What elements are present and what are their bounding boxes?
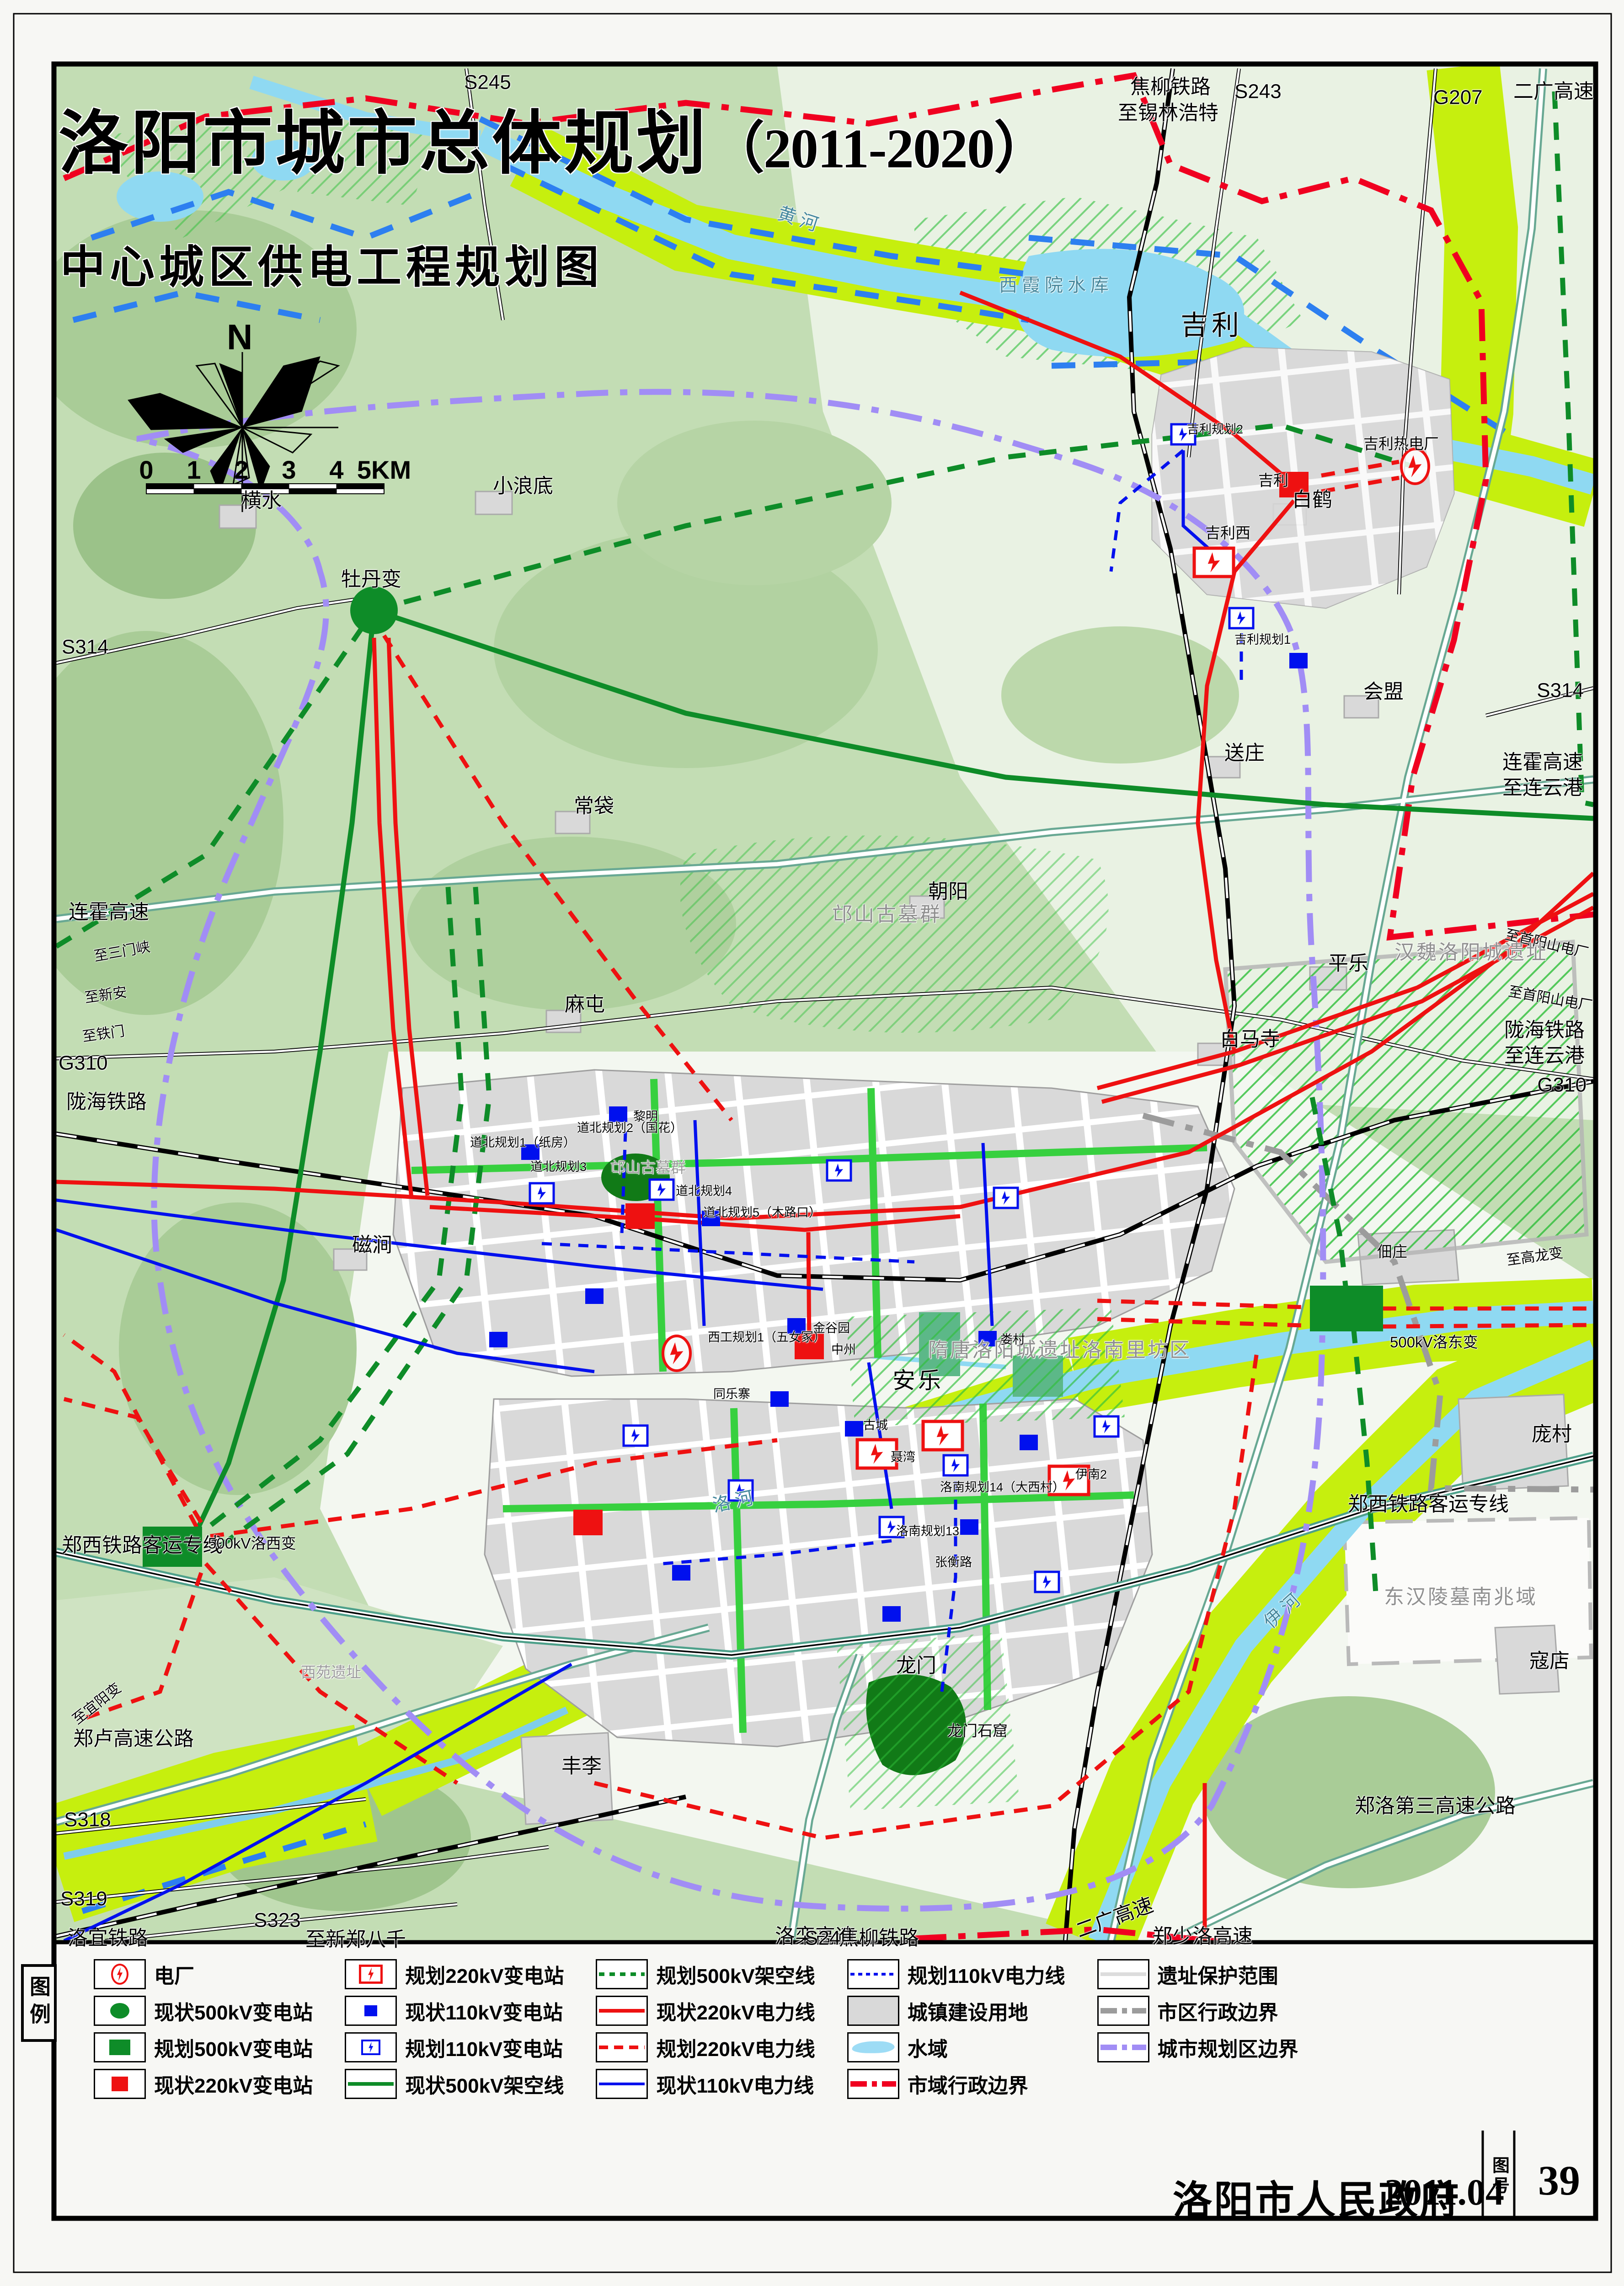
legend-item: 规划220kV变电站 <box>345 1956 564 1992</box>
legend-title: 图例 <box>21 1964 57 2042</box>
substation-marker <box>787 1318 806 1334</box>
substation-marker <box>585 1288 604 1304</box>
substation-marker <box>672 1565 690 1581</box>
legend-item-label: 现状110kV变电站 <box>405 1996 563 2025</box>
substation-marker <box>702 1211 720 1226</box>
substation-marker <box>978 1331 997 1346</box>
substation-marker <box>489 1332 507 1347</box>
legend-symbol-icon <box>847 1996 899 2026</box>
page-subtitle: 中心城区供电工程规划图 <box>60 231 604 296</box>
legend-item-label: 规划110kV电力线 <box>908 1960 1065 1989</box>
legend-symbol-icon <box>345 2032 397 2062</box>
legend-symbol-icon <box>1097 1959 1149 1989</box>
legend-item: 规划500kV架空线 <box>596 1956 815 1992</box>
scale-tick: 0 <box>139 455 153 485</box>
scale-tick: 5KM <box>357 455 411 485</box>
legend-item-label: 遗址保护范围 <box>1158 1960 1278 1989</box>
legend-item: 遗址保护范围 <box>1097 1956 1298 1992</box>
substation-marker <box>882 1606 901 1622</box>
legend-item-label: 规划110kV变电站 <box>405 2033 563 2062</box>
page-title: 洛阳市城市总体规划（2011-2020） <box>59 87 1049 187</box>
legend-item: 市域行政边界 <box>847 2066 1065 2102</box>
legend-symbol-icon <box>596 1996 648 2026</box>
legend-item-label: 电厂 <box>154 1960 194 1989</box>
legend-item-label: 规划220kV变电站 <box>405 1960 564 1989</box>
legend-item-label: 水域 <box>908 2033 948 2062</box>
sheet-number-label: 图号 <box>1484 2134 1514 2218</box>
map-sheet: 洛阳市城市总体规划（2011-2020） 中心城区供电工程规划图 N 01234… <box>0 0 1624 2286</box>
scale-tick: 2 <box>234 455 248 485</box>
substation-marker <box>960 1519 978 1535</box>
substation-marker <box>573 1510 603 1535</box>
legend-item-label: 现状110kV电力线 <box>656 2069 814 2099</box>
legend-symbol-icon <box>847 1959 899 1989</box>
legend-item-label: 规划220kV电力线 <box>656 2033 815 2062</box>
legend-item-label: 现状220kV电力线 <box>656 1996 815 2025</box>
legend-symbol-icon <box>847 2032 899 2062</box>
legend-symbol-icon <box>94 2069 146 2099</box>
substation-marker <box>625 1203 655 1229</box>
legend-symbol-icon <box>94 1996 146 2026</box>
scale-tick: 4 <box>329 455 343 485</box>
substation-marker <box>1289 653 1308 668</box>
compass-north-label: N <box>227 316 252 358</box>
legend-item: 市区行政边界 <box>1097 1992 1298 2029</box>
legend-symbol-icon <box>1097 2032 1149 2062</box>
legend-item: 现状220kV变电站 <box>94 2066 313 2102</box>
legend-item: 现状110kV电力线 <box>596 2066 815 2102</box>
legend-item-label: 规划500kV变电站 <box>154 2033 313 2062</box>
legend: 电厂 现状500kV变电站 规划500kV变电站 现状220kV变电站 规划22… <box>94 1956 1298 2102</box>
legend-symbol-icon <box>94 2032 146 2062</box>
substation-marker <box>1310 1286 1383 1331</box>
substation-marker <box>770 1391 789 1407</box>
substation-marker <box>1020 1435 1038 1450</box>
legend-item: 规划220kV电力线 <box>596 2029 815 2066</box>
substation-marker <box>521 1144 540 1160</box>
substation-marker <box>609 1106 627 1122</box>
legend-item: 现状500kV架空线 <box>345 2066 564 2102</box>
legend-symbol-icon <box>1097 1996 1149 2026</box>
legend-symbol-icon <box>345 2069 397 2099</box>
legend-item-label: 现状500kV变电站 <box>154 1996 313 2025</box>
substation-marker <box>350 587 398 634</box>
legend-item: 电厂 <box>94 1956 313 1992</box>
legend-item-label: 市域行政边界 <box>908 2069 1028 2099</box>
legend-item-label: 现状500kV架空线 <box>405 2069 564 2099</box>
substation-marker <box>795 1334 824 1359</box>
legend-item-label: 城市规划区边界 <box>1158 2033 1298 2062</box>
substation-marker <box>1279 472 1309 497</box>
legend-item-label: 城镇建设用地 <box>908 1996 1028 2025</box>
legend-item: 水域 <box>847 2029 1065 2066</box>
legend-symbol-icon <box>345 1959 397 1989</box>
legend-symbol-icon <box>847 2069 899 2099</box>
legend-symbol-icon <box>596 1959 648 1989</box>
legend-item: 规划110kV变电站 <box>345 2029 564 2066</box>
legend-symbol-icon <box>596 2069 648 2099</box>
title-text: 洛阳市城市总体规划 <box>59 105 709 182</box>
legend-symbol-icon <box>596 2032 648 2062</box>
legend-symbol-icon <box>345 1996 397 2026</box>
legend-item: 规划500kV变电站 <box>94 2029 313 2066</box>
legend-item-label: 规划500kV架空线 <box>656 1960 815 1989</box>
scale-tick: 3 <box>282 455 296 485</box>
legend-item: 城市规划区边界 <box>1097 2029 1298 2066</box>
legend-item: 规划110kV电力线 <box>847 1956 1065 1992</box>
legend-item: 城镇建设用地 <box>847 1992 1065 2029</box>
legend-item: 现状110kV变电站 <box>345 1992 564 2029</box>
substation-marker <box>845 1421 863 1437</box>
scale-bar <box>146 484 384 494</box>
legend-item: 现状220kV电力线 <box>596 1992 815 2029</box>
legend-item-label: 市区行政边界 <box>1158 1996 1278 2025</box>
legend-symbol-icon <box>94 1959 146 1989</box>
scale-tick: 1 <box>187 455 201 485</box>
substation-marker <box>143 1527 202 1567</box>
sheet-number: 39 <box>1522 2156 1596 2205</box>
legend-item-label: 现状220kV变电站 <box>154 2069 313 2099</box>
title-years: （2011-2020） <box>709 118 1049 180</box>
legend-item: 现状500kV变电站 <box>94 1992 313 2029</box>
